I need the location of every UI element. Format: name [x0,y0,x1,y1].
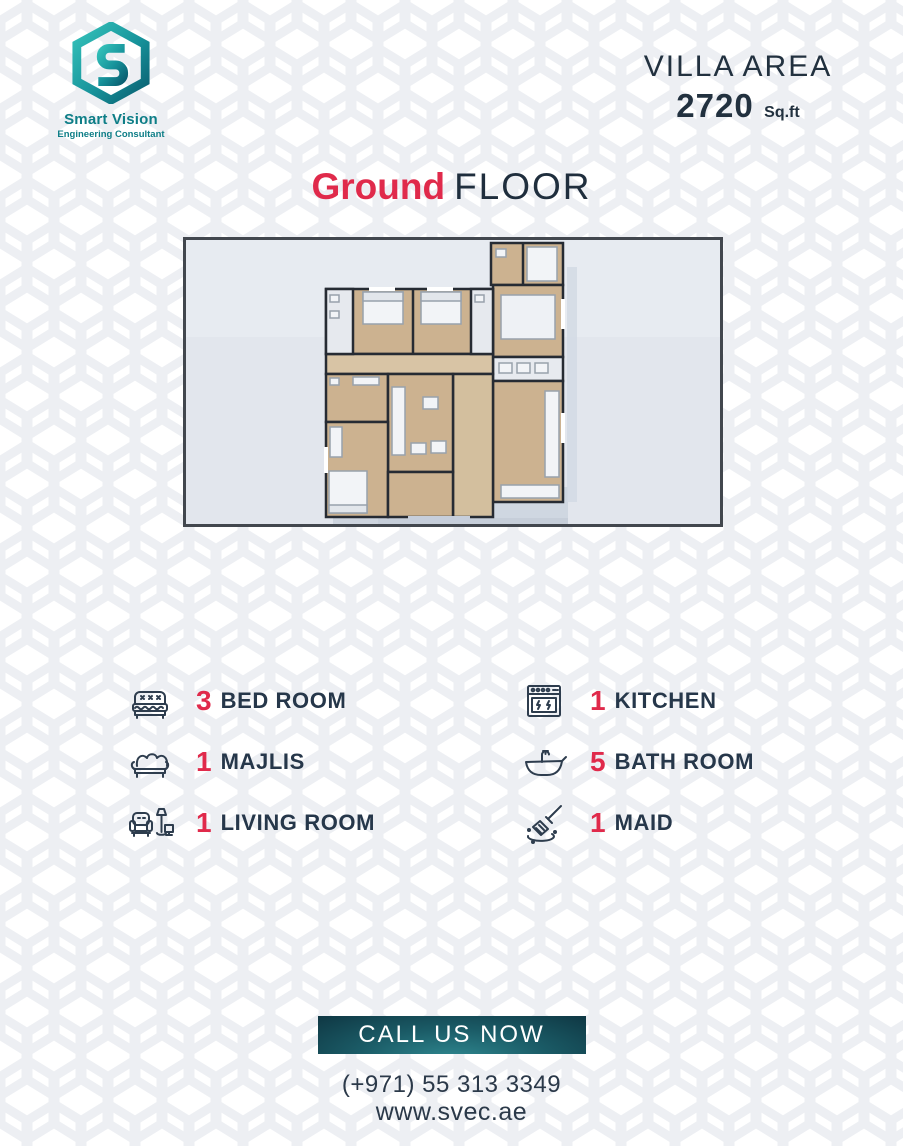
villa-area-label: VILLA AREA [608,50,868,84]
features-column-left: 3 BED ROOM 1 MAJLIS [126,670,375,853]
floor-plan-render [183,237,723,527]
armchair-lamp-tv-icon [126,799,174,847]
brand-logo-block: Smart Vision Engineering Consultant [44,22,178,140]
smart-vision-hexagon-logo-icon [67,22,155,104]
feature-bedroom: 3 BED ROOM [126,670,375,731]
feature-label: BED ROOM [221,688,347,714]
floor-plan-image [183,237,723,527]
feature-count: 1 [590,807,606,839]
feature-maid: 1 MAID [520,792,754,853]
villa-area-block: VILLA AREA 2720 Sq.ft [608,50,868,125]
feature-count: 1 [196,807,212,839]
bed-icon [126,677,174,725]
villa-area-value-row: 2720 Sq.ft [608,87,868,125]
bathtub-icon [520,738,568,786]
website-url: www.svec.ae [0,1098,903,1127]
phone-number: (+971) 55 313 3349 [0,1071,903,1099]
features-column-right: 1 KITCHEN 5 BATH ROOM [520,670,754,853]
feature-count: 5 [590,746,606,778]
brand-name: Smart Vision [44,111,178,128]
page-title-rest: FLOOR [454,166,591,207]
feature-label: LIVING ROOM [221,810,376,836]
feature-living-room: 1 LIVING ROOM [126,792,375,853]
feature-label: MAJLIS [221,749,305,775]
feature-count: 1 [590,685,606,717]
page-title-highlight: Ground [311,166,445,207]
majlis-sofa-icon [126,738,174,786]
cleaning-brush-icon [520,799,568,847]
villa-area-value: 2720 [676,87,753,124]
feature-count: 1 [196,746,212,778]
feature-bathroom: 5 BATH ROOM [520,731,754,792]
feature-label: KITCHEN [615,688,717,714]
call-us-now-button[interactable]: CALL US NOW [318,1016,586,1054]
villa-area-unit: Sq.ft [764,104,800,121]
flyer-page: Smart Vision Engineering Consultant VILL… [0,0,903,1146]
feature-majlis: 1 MAJLIS [126,731,375,792]
stove-icon [520,677,568,725]
feature-count: 3 [196,685,212,717]
feature-kitchen: 1 KITCHEN [520,670,754,731]
feature-label: BATH ROOM [615,749,754,775]
brand-tagline: Engineering Consultant [44,129,178,140]
feature-label: MAID [615,810,674,836]
page-title: GroundFLOOR [0,166,903,208]
